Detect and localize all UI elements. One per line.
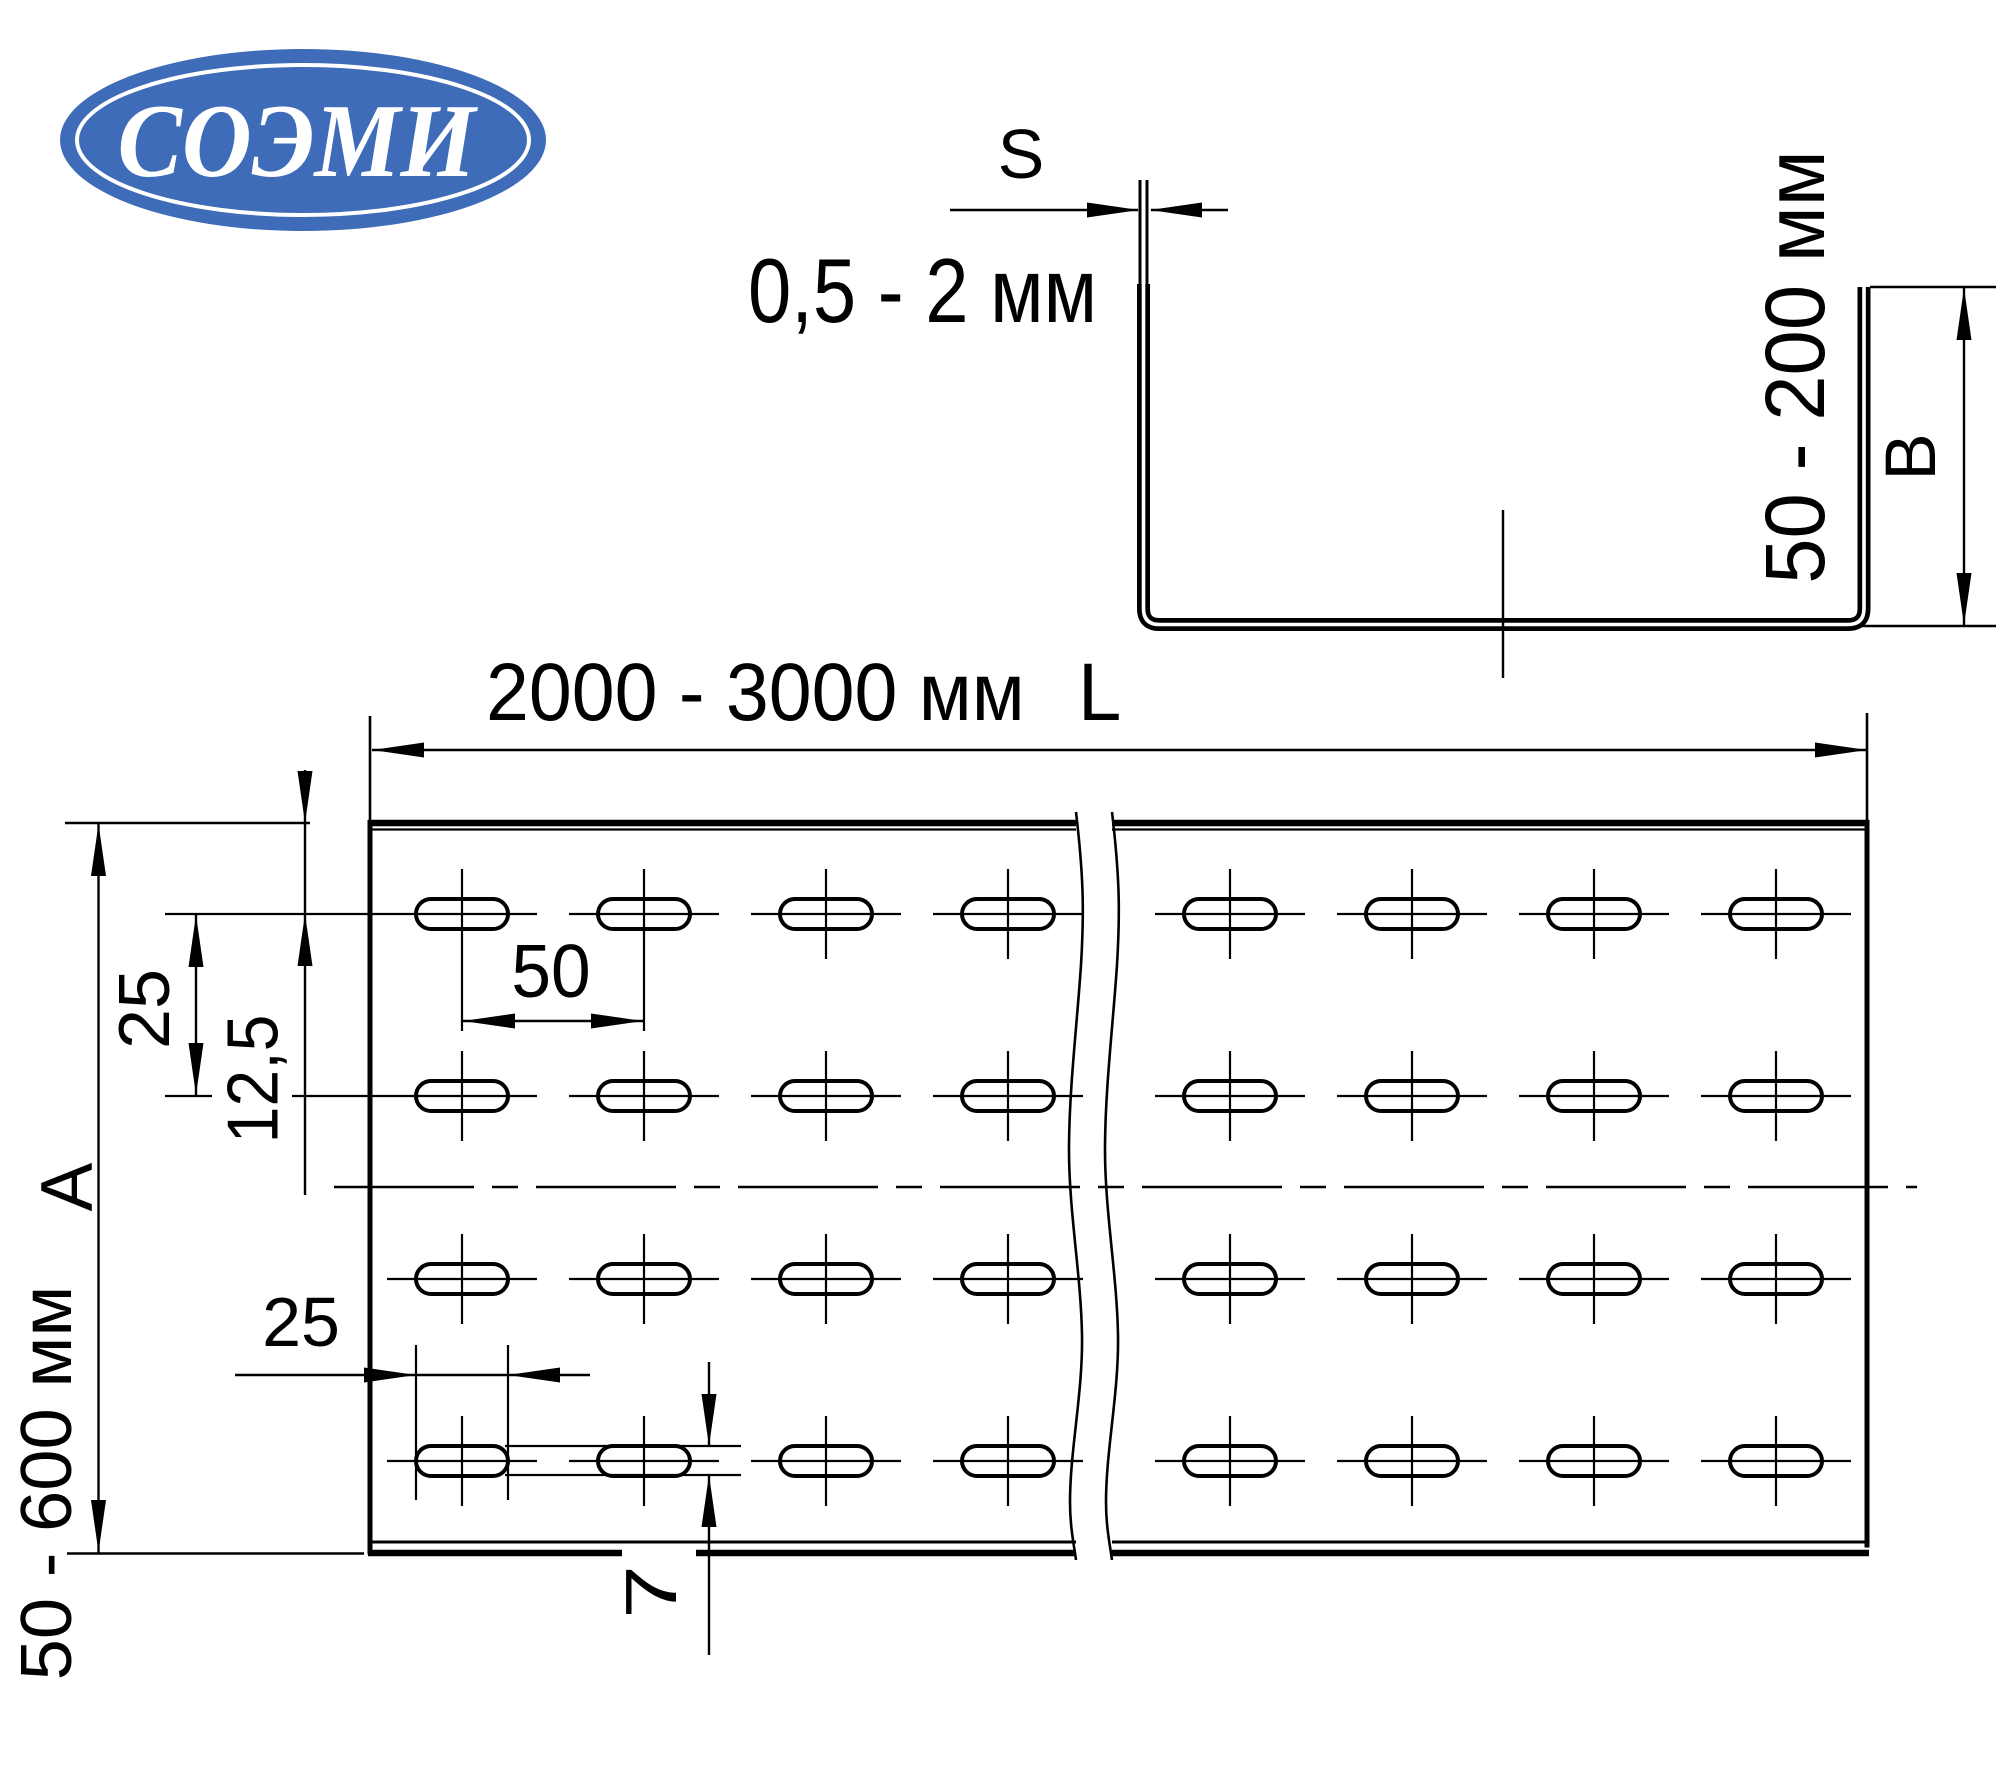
svg-text:L: L (1078, 646, 1121, 737)
svg-text:S: S (998, 115, 1045, 193)
svg-text:2000 - 3000 мм: 2000 - 3000 мм (486, 646, 1025, 738)
svg-text:7: 7 (612, 1565, 692, 1619)
svg-text:50 - 200 мм: 50 - 200 мм (1748, 150, 1842, 584)
svg-text:50 - 600 мм: 50 - 600 мм (7, 1286, 87, 1681)
svg-text:A: A (27, 1162, 108, 1211)
svg-text:0,5 - 2 мм: 0,5 - 2 мм (748, 239, 1097, 341)
svg-text:СОЭМИ: СОЭМИ (117, 82, 478, 199)
svg-text:50: 50 (511, 930, 590, 1013)
svg-text:25: 25 (262, 1283, 340, 1361)
svg-text:B: B (1872, 433, 1951, 480)
svg-text:25: 25 (105, 969, 185, 1049)
svg-text:12,5: 12,5 (212, 1015, 293, 1144)
